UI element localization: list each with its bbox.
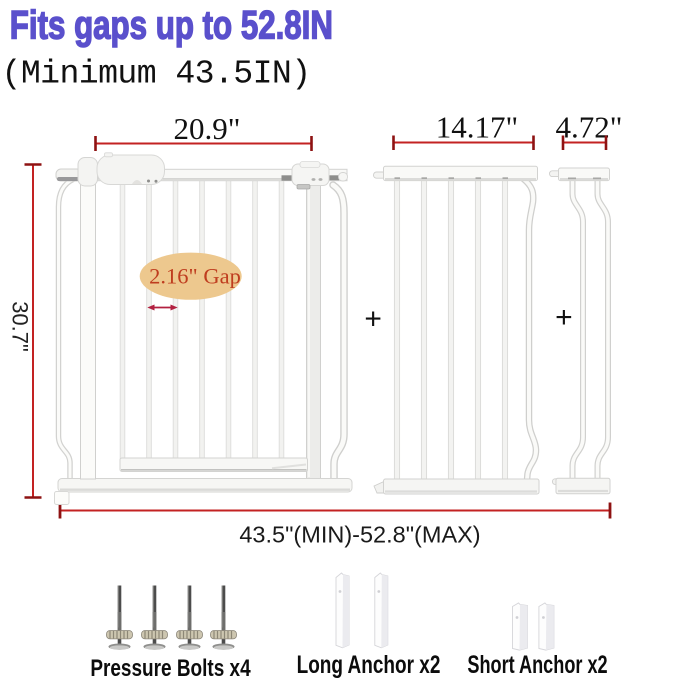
svg-text:43.5"(MIN)-52.8"(MAX): 43.5"(MIN)-52.8"(MAX) xyxy=(239,522,480,548)
svg-text:14.17": 14.17" xyxy=(436,110,518,145)
svg-text:Short Anchor x2: Short Anchor x2 xyxy=(467,650,607,679)
svg-text:2.16" Gap: 2.16" Gap xyxy=(149,264,241,289)
svg-text:Fits gaps up to 52.8IN: Fits gaps up to 52.8IN xyxy=(10,3,333,48)
svg-text:Pressure Bolts x4: Pressure Bolts x4 xyxy=(90,654,251,679)
svg-text:+: + xyxy=(555,301,573,334)
svg-text:30.7": 30.7" xyxy=(8,301,33,352)
svg-text:(Minimum 43.5IN): (Minimum 43.5IN) xyxy=(2,55,311,93)
svg-text:+: + xyxy=(364,302,382,335)
svg-text:Long Anchor x2: Long Anchor x2 xyxy=(297,650,441,678)
svg-text:4.72": 4.72" xyxy=(556,110,623,145)
svg-text:20.9": 20.9" xyxy=(174,111,241,146)
